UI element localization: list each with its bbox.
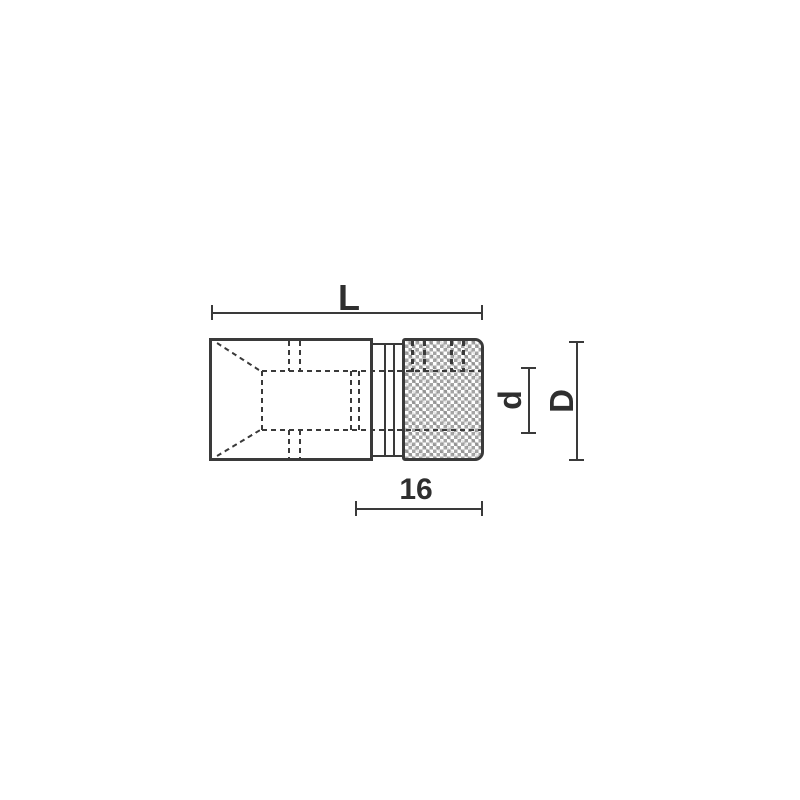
hidden-pinhole-right-top	[299, 341, 301, 371]
dim-length-tick-left	[211, 305, 213, 320]
hidden-pinhole-right-bottom	[299, 430, 301, 459]
hidden-hex-line-2	[423, 341, 426, 372]
hidden-pinhole-left-bottom	[288, 430, 290, 459]
neck-top-edge	[371, 343, 403, 345]
dim-insert-length-label: 16	[386, 474, 446, 506]
drawing-canvas: L 16 d D	[0, 0, 800, 800]
neck-groove-line-left	[384, 344, 386, 456]
socket-body-outline	[209, 338, 373, 461]
dim-insert-length-tick-left	[355, 501, 357, 516]
hidden-pinhole-left-top	[288, 341, 290, 371]
dim-inner-diameter-line	[528, 368, 530, 433]
knurled-band	[402, 338, 484, 461]
hidden-cavity-back-wall-left	[350, 371, 352, 430]
hidden-bore-line-top	[262, 370, 482, 372]
dim-insert-length-tick-right	[481, 501, 483, 516]
dim-length-tick-right	[481, 305, 483, 320]
dim-inner-diameter-tick-top	[521, 367, 536, 369]
dim-outer-diameter-line	[576, 342, 578, 461]
dim-inner-diameter-tick-bottom	[521, 432, 536, 434]
hidden-hex-line-1	[411, 341, 414, 372]
hidden-cavity-back-wall-right	[358, 371, 360, 430]
dim-length-line	[212, 312, 483, 314]
dim-outer-diameter-label: D	[541, 381, 581, 421]
neck-groove-line-right	[393, 344, 395, 456]
dim-inner-diameter-label: d	[490, 380, 530, 420]
dim-outer-diameter-tick-top	[569, 341, 584, 343]
hidden-hex-line-3	[450, 341, 453, 372]
hidden-bore-line-bottom	[262, 429, 482, 431]
dim-outer-diameter-tick-bottom	[569, 459, 584, 461]
dim-insert-length-line	[356, 508, 483, 510]
neck-bottom-edge	[371, 455, 403, 457]
hidden-hex-line-4	[462, 341, 465, 372]
hidden-cavity-left-edge	[261, 371, 263, 430]
